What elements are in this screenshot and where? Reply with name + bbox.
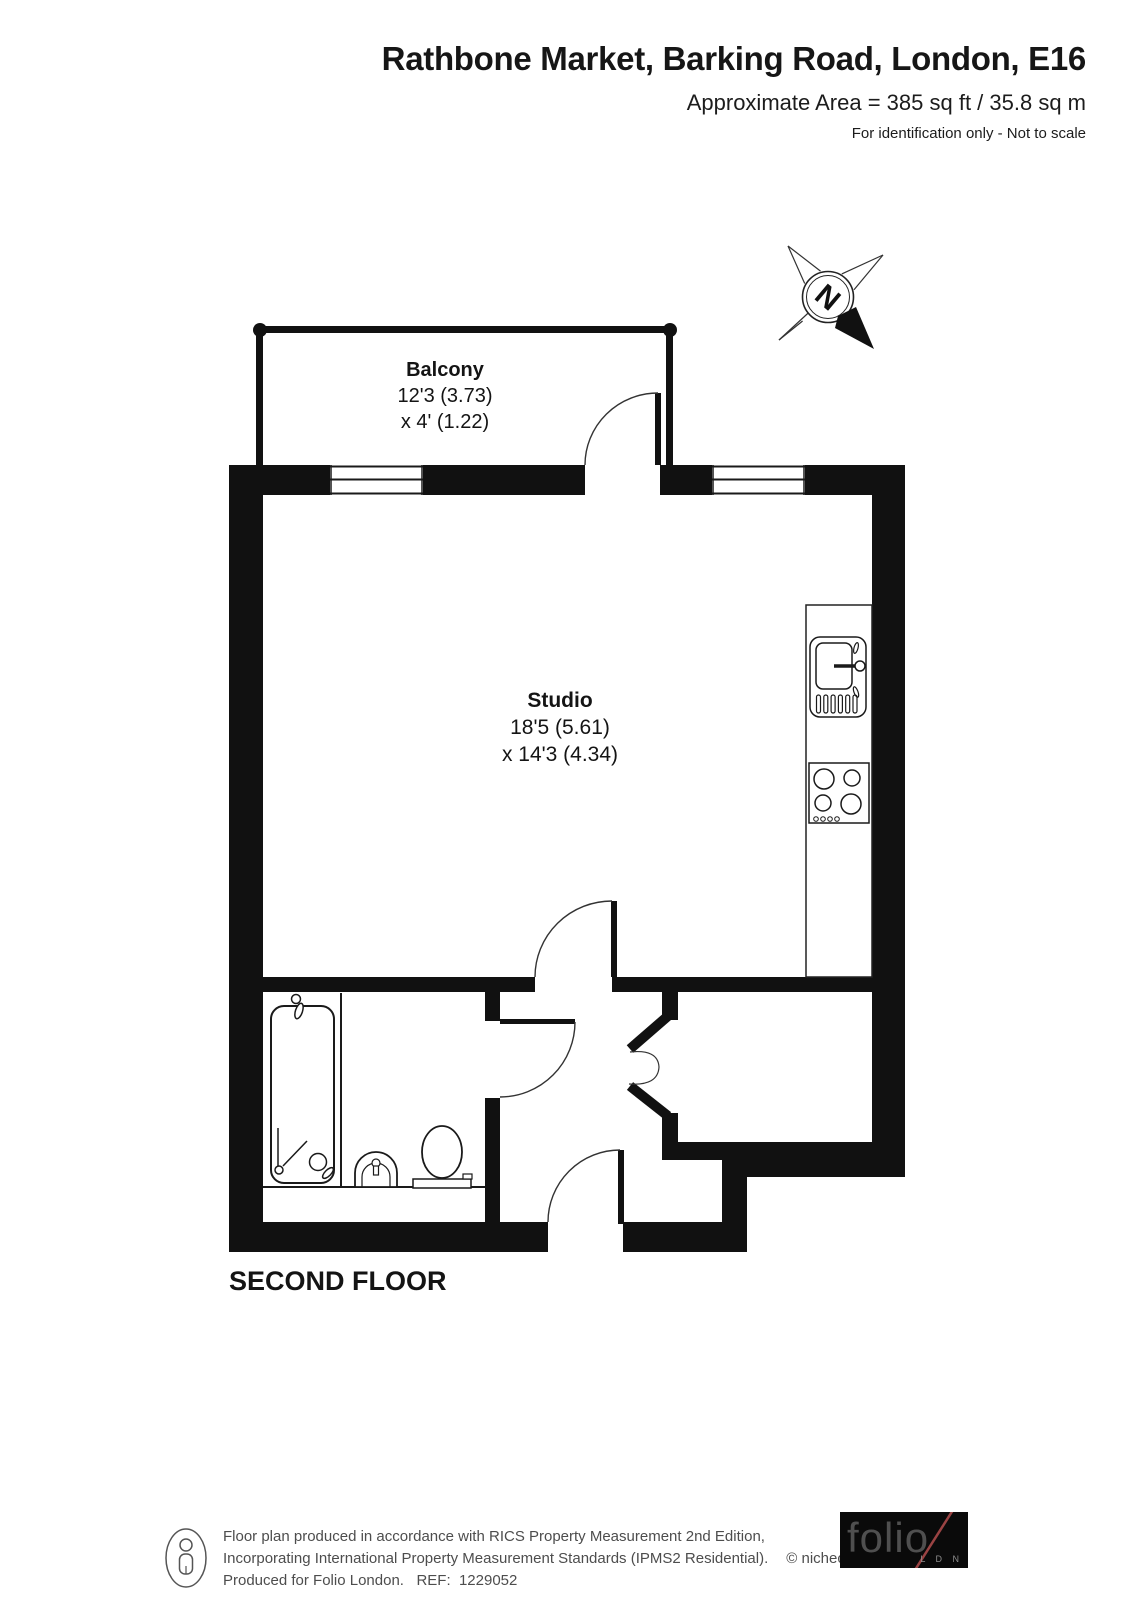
person-icon	[163, 1526, 209, 1590]
balcony-door	[585, 393, 661, 465]
balcony-name: Balcony	[325, 357, 565, 383]
toilet-icon	[413, 1126, 472, 1188]
balcony-dim1: 12'3 (3.73)	[325, 383, 565, 409]
studio-label: Studio 18'5 (5.61) x 14'3 (4.34)	[420, 687, 700, 768]
page-title: Rathbone Market, Barking Road, London, E…	[382, 40, 1086, 78]
footer-line2: Incorporating International Property Mea…	[223, 1548, 768, 1570]
footer: Floor plan produced in accordance with R…	[163, 1526, 907, 1592]
footer-line3: Produced for Folio London. REF: 1229052	[223, 1570, 907, 1592]
footer-text: Floor plan produced in accordance with R…	[223, 1526, 907, 1592]
bath-icon	[271, 993, 341, 1186]
balcony-dim2: x 4' (1.22)	[325, 409, 565, 435]
studio-name: Studio	[420, 687, 700, 714]
studio-dim2: x 14'3 (4.34)	[420, 741, 700, 768]
studio-dim1: 18'5 (5.61)	[420, 714, 700, 741]
header: Rathbone Market, Barking Road, London, E…	[382, 40, 1086, 142]
entrance-door	[548, 1150, 624, 1224]
floor-label: SECOND FLOOR	[229, 1266, 447, 1297]
studio-door	[535, 901, 617, 977]
folio-logo-sub: L D N	[920, 1554, 963, 1564]
compass-icon: N	[779, 246, 883, 349]
area-text: Approximate Area = 385 sq ft / 35.8 sq m	[382, 90, 1086, 116]
bathroom-door	[500, 1019, 575, 1097]
footer-line1: Floor plan produced in accordance with R…	[223, 1526, 907, 1548]
disclaimer-text: For identification only - Not to scale	[382, 125, 1086, 142]
window-left	[330, 465, 423, 495]
balcony-label: Balcony 12'3 (3.73) x 4' (1.22)	[325, 357, 565, 435]
sink-icon	[810, 637, 866, 717]
folio-logo: folio L D N	[840, 1512, 968, 1568]
floorplan-page: N Rathbone Market, Barking Road, London,…	[0, 0, 1131, 1599]
cupboard-doors	[629, 1052, 659, 1085]
entry-angled-walls	[630, 1016, 668, 1116]
basin-icon	[355, 1152, 397, 1187]
floorplan-drawing: N	[0, 0, 1131, 1599]
hob-icon	[809, 763, 869, 823]
window-right	[712, 465, 805, 495]
